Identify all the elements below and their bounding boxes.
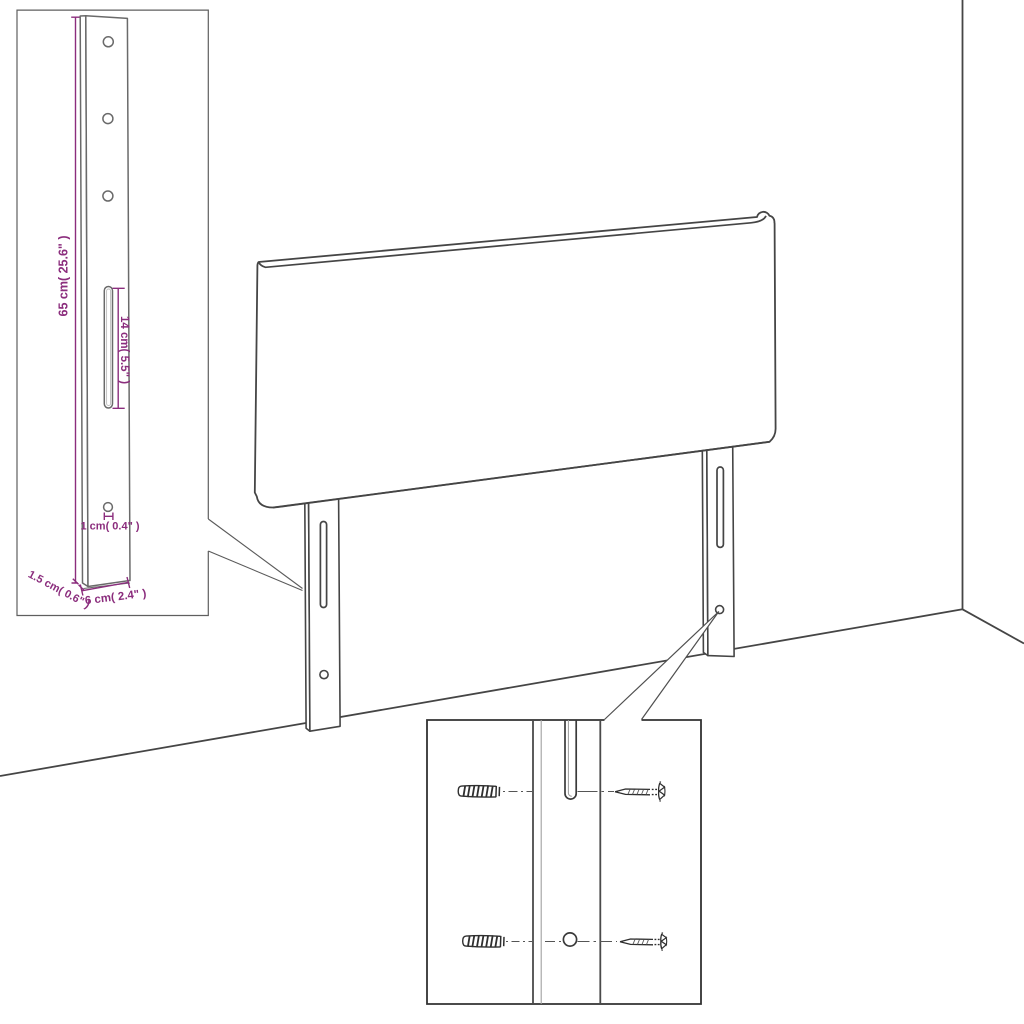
svg-text:65 cm( 25.6" ): 65 cm( 25.6" ): [57, 236, 71, 317]
svg-text:14 cm( 5.5" ): 14 cm( 5.5" ): [118, 316, 130, 384]
svg-text:1 cm( 0.4" ): 1 cm( 0.4" ): [81, 521, 140, 533]
